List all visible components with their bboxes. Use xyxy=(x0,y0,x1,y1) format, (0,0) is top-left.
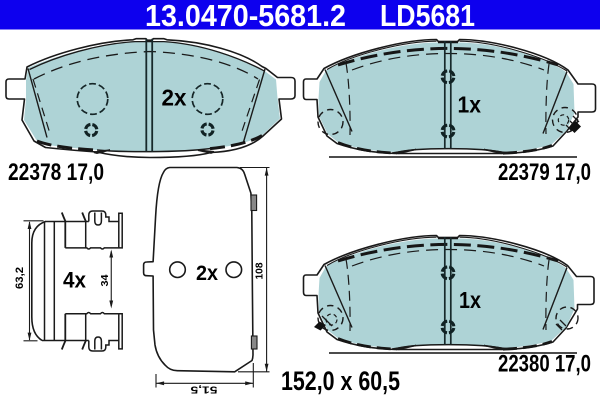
svg-text:63,2: 63,2 xyxy=(14,267,26,289)
svg-text:1x: 1x xyxy=(458,92,482,118)
svg-text:4x: 4x xyxy=(63,268,87,293)
svg-text:22379 17,0: 22379 17,0 xyxy=(498,159,591,186)
svg-text:22378 17,0: 22378 17,0 xyxy=(8,159,104,186)
svg-text:108: 108 xyxy=(254,262,266,279)
svg-text:51,5: 51,5 xyxy=(190,383,217,395)
svg-text:13.0470-5681.2: 13.0470-5681.2 xyxy=(145,0,346,33)
svg-text:152,0 x 60,5: 152,0 x 60,5 xyxy=(281,366,400,396)
svg-text:2x: 2x xyxy=(162,85,187,111)
svg-text:34: 34 xyxy=(99,274,111,286)
svg-text:22380 17,0: 22380 17,0 xyxy=(498,351,591,378)
svg-text:2x: 2x xyxy=(196,262,218,285)
svg-text:1x: 1x xyxy=(459,287,481,313)
svg-text:LD5681: LD5681 xyxy=(380,0,475,33)
